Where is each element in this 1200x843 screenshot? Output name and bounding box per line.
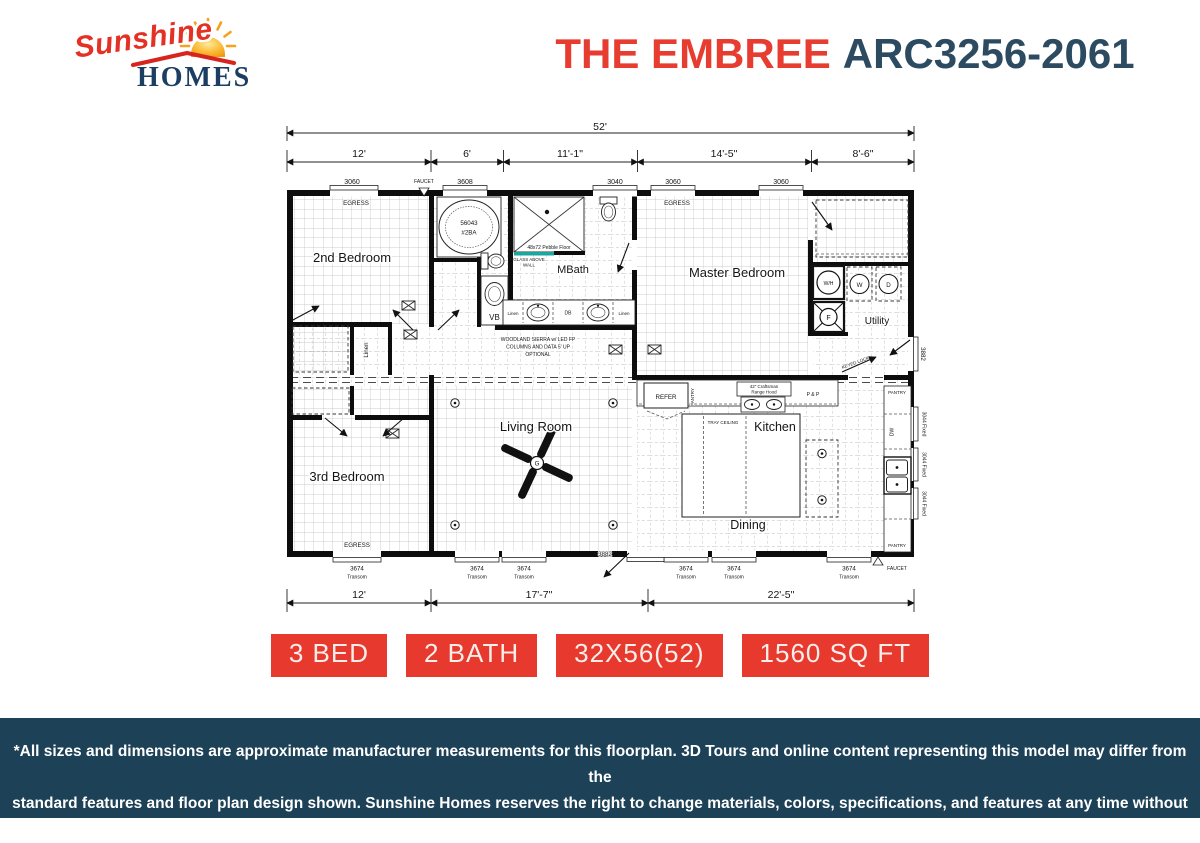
vanity-linen: Linen <box>507 311 519 316</box>
pantry-label: PANTRY <box>888 390 906 395</box>
dim-top: 6' <box>463 148 471 160</box>
transom-size: 3674 <box>727 566 741 573</box>
disclaimer-footer: *All sizes and dimensions are approximat… <box>0 718 1200 818</box>
furnace-label: F <box>826 315 830 322</box>
tub-model: 56043 <box>460 220 478 227</box>
vanity-linen: Linen <box>618 311 630 316</box>
fixed-window-label: 3044 Fixed <box>921 412 927 437</box>
floor-plan-svg: 3060 3608 3040 3060 3060 FAUCET EGRESS E… <box>270 118 940 618</box>
transom-word: Transom <box>724 575 744 581</box>
tub-tag: #2BA <box>461 230 477 237</box>
wh-label: W/H <box>824 281 834 287</box>
badge-size: 32X56(52) <box>556 634 722 677</box>
shower-floor-label: 48x72 Pebble Floor <box>527 245 571 251</box>
room-label-living: Living Room <box>500 419 572 434</box>
dishwasher-label: DW <box>890 428 896 437</box>
pantry-label: PANTRY <box>888 543 906 548</box>
room-label-kitchen: Kitchen <box>754 420 796 434</box>
badge-sqft: 1560 SQ FT <box>742 634 930 677</box>
sunshine-homes-logo: Sunshine HOMES <box>60 10 330 110</box>
range-hood-label: Range Hood <box>751 390 777 395</box>
fixed-window-label: 3044 Fixed <box>921 452 927 477</box>
dim-top: 14'-5" <box>711 148 738 160</box>
option-note: OPTIONAL <box>525 352 551 358</box>
disclaimer-line-2: standard features and floor plan design … <box>0 791 1200 843</box>
dim-top: 11'-1" <box>557 148 583 160</box>
dim-bottom: 17'-7" <box>526 589 553 601</box>
dim-overall: 52' <box>593 121 607 133</box>
toilet <box>481 253 504 269</box>
garden-tub <box>437 197 501 257</box>
fan-label: G <box>535 461 540 468</box>
model-name: THE EMBREE <box>555 30 830 77</box>
logo-serif-text: HOMES <box>137 62 251 94</box>
page-title: THE EMBREEARC3256-2061 <box>500 30 1190 78</box>
dim-top: 8'-6" <box>853 148 874 160</box>
faucet-label-bottom: FAUCET <box>887 566 907 572</box>
glass-wall <box>514 252 554 256</box>
transom-size: 3674 <box>470 566 484 573</box>
dryer-label: D <box>886 282 891 289</box>
window-label: 3608 <box>457 179 473 186</box>
front-door-size: 3882 <box>598 551 612 558</box>
back-door-opening <box>908 337 914 371</box>
badge-baths: 2 BATH <box>406 634 537 677</box>
transom-word: Transom <box>467 575 487 581</box>
room-label-mbath: MBath <box>557 264 589 276</box>
pots-pans-label: P & P <box>807 392 820 398</box>
room-label-dining: Dining <box>730 518 765 532</box>
front-door-opening <box>627 551 664 559</box>
vanity-db: DB <box>565 311 573 317</box>
refer-label: REFER <box>656 394 678 401</box>
window-label: 3060 <box>344 179 360 186</box>
transom-word: Transom <box>514 575 534 581</box>
option-note: COLUMNS AND DATA 5' UP <box>506 345 571 351</box>
badge-beds: 3 BED <box>271 634 387 677</box>
faucet-marker-bottom <box>873 557 883 565</box>
vb-label: VB <box>489 313 500 322</box>
model-code: ARC3256-2061 <box>843 30 1135 77</box>
room-label-bedroom3: 3rd Bedroom <box>309 469 384 484</box>
dimension-lines-bottom <box>287 589 914 612</box>
range-hood-label: 42" Craftsman <box>750 384 779 389</box>
transom-word: Transom <box>676 575 696 581</box>
disclaimer-line-1: *All sizes and dimensions are approximat… <box>0 739 1200 791</box>
washer-label: W <box>857 282 863 289</box>
egress-label: EGRESS <box>343 200 369 207</box>
page: Sunshine HOMES THE EMBREEARC3256-2061 <box>0 0 1200 818</box>
transom-size: 3674 <box>350 566 364 573</box>
transom-size: 3674 <box>517 566 531 573</box>
transom-word: Transom <box>839 575 859 581</box>
spec-badges: 3 BED 2 BATH 32X56(52) 1560 SQ FT <box>0 634 1200 677</box>
back-door-size: 3882 <box>919 347 926 361</box>
range <box>741 397 785 412</box>
transom-size: 3674 <box>679 566 693 573</box>
room-label-master: Master Bedroom <box>689 265 785 280</box>
transom-size: 3674 <box>842 566 856 573</box>
window-label: 3060 <box>665 179 681 186</box>
toilet <box>600 197 617 221</box>
option-note: WOODLAND SIERRA w/ LED FP <box>501 337 576 343</box>
room-label-utility: Utility <box>865 316 889 327</box>
dim-bottom: 22'-5" <box>768 589 795 601</box>
faucet-label-top: FAUCET <box>414 179 434 185</box>
pantry-label: PANTRY <box>690 388 695 406</box>
fixed-window-label: 3044 Fixed <box>921 491 927 516</box>
kitchen-counter-east <box>884 386 911 552</box>
room-label-bedroom2: 2nd Bedroom <box>313 250 391 265</box>
tray-ceiling-label: TRAY CEILING <box>708 420 739 425</box>
window-label: 3060 <box>773 179 789 186</box>
egress-label: EGRESS <box>344 542 370 549</box>
glass-note: GLASS ABOVE <box>513 257 545 262</box>
glass-note: WALL <box>523 263 536 268</box>
dim-top: 12' <box>352 148 366 160</box>
transom-word: Transom <box>347 575 367 581</box>
egress-label: EGRESS <box>664 200 690 207</box>
window-label: 3040 <box>607 179 623 186</box>
floor-plan: 3060 3608 3040 3060 3060 FAUCET EGRESS E… <box>270 118 940 618</box>
dim-bottom: 12' <box>352 589 366 601</box>
room-label-linen: Linen <box>363 342 370 358</box>
